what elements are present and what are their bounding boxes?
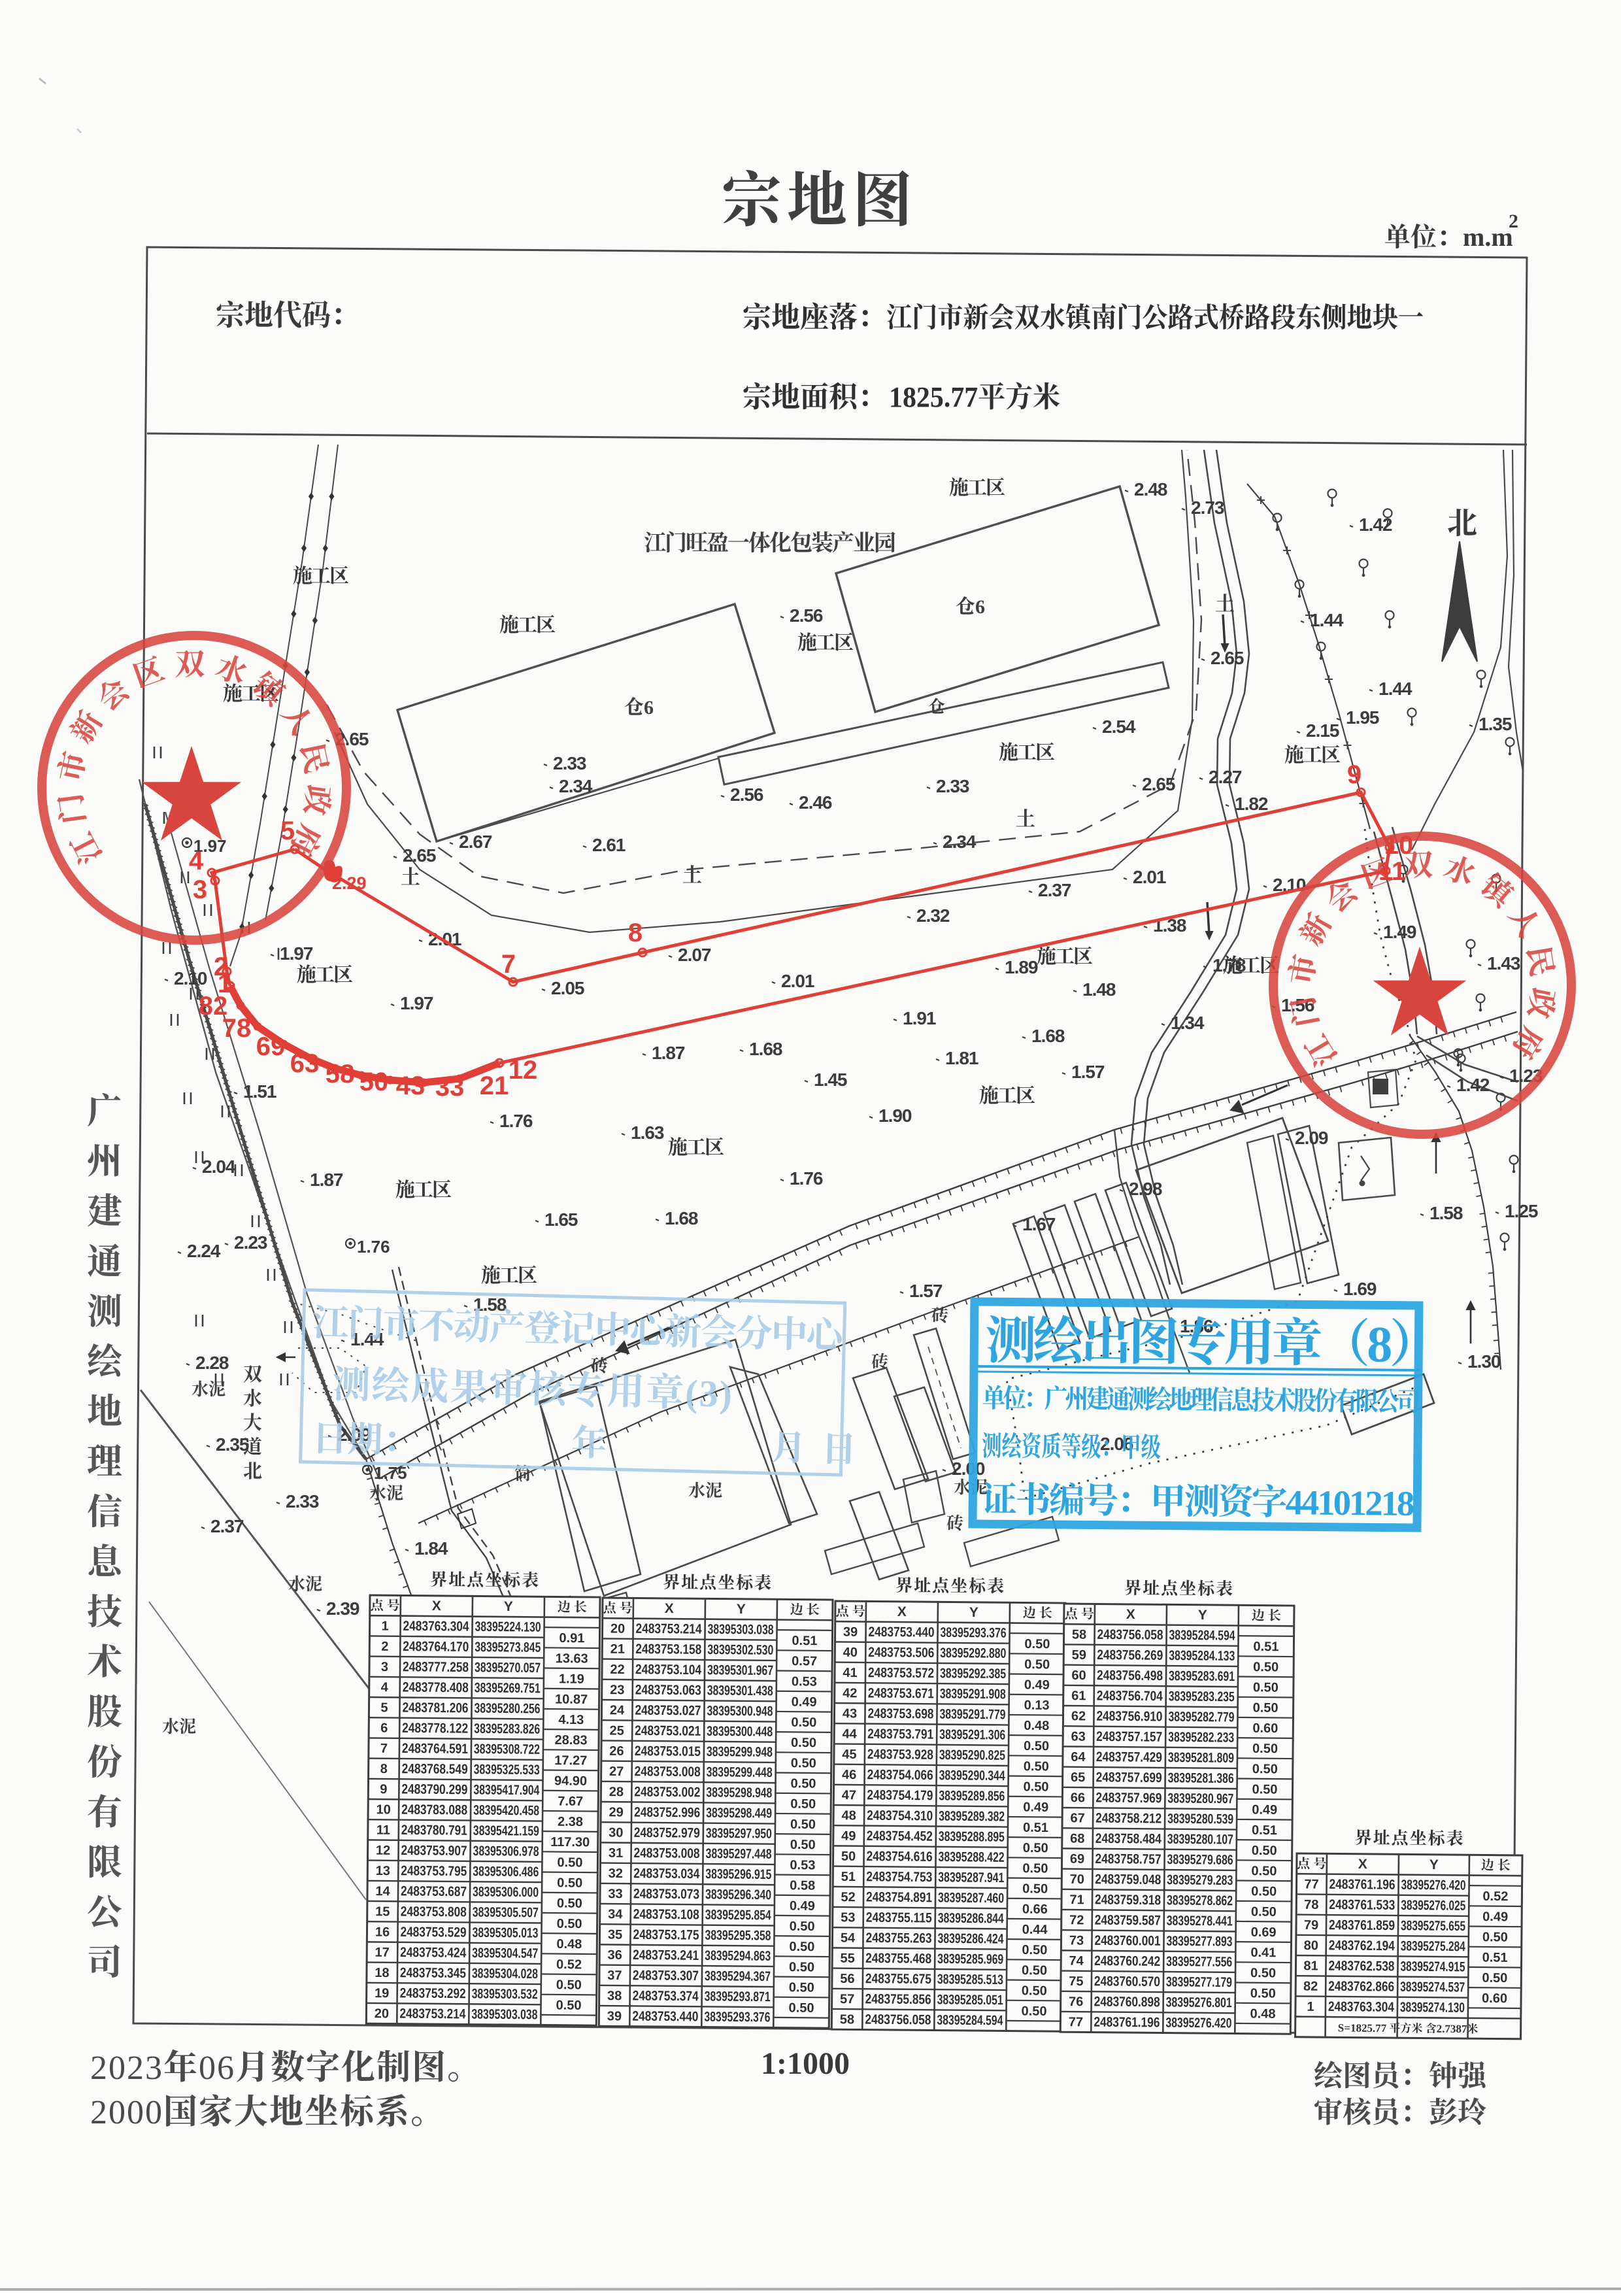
svg-text:2.73: 2.73	[1191, 498, 1224, 518]
svg-text:38395420.458: 38395420.458	[473, 1803, 539, 1819]
svg-text:2.34: 2.34	[943, 832, 977, 852]
svg-text:10: 10	[376, 1802, 390, 1817]
svg-text:38395298.449: 38395298.449	[706, 1806, 772, 1821]
svg-text:地: 地	[87, 1384, 122, 1434]
svg-text:1: 1	[381, 1619, 388, 1634]
svg-text:点 号: 点 号	[371, 1595, 400, 1613]
svg-text:术: 术	[87, 1634, 122, 1685]
svg-text:2.32: 2.32	[916, 905, 950, 926]
svg-text:2.04: 2.04	[202, 1156, 236, 1177]
svg-text:30: 30	[609, 1825, 623, 1840]
svg-text:施工区: 施工区	[499, 609, 556, 637]
svg-text:5: 5	[380, 1700, 388, 1715]
svg-text:2483763.304: 2483763.304	[1328, 1999, 1394, 2015]
svg-text:38395276.025: 38395276.025	[1401, 1898, 1465, 1914]
svg-text:38395279.686: 38395279.686	[1167, 1852, 1233, 1868]
svg-text:21: 21	[480, 1072, 509, 1100]
svg-text:施工区: 施工区	[949, 471, 1005, 500]
svg-text:2: 2	[1509, 205, 1518, 233]
svg-text:2483758.484: 2483758.484	[1095, 1831, 1161, 1847]
svg-text:X: X	[665, 1601, 674, 1616]
svg-text:0.91: 0.91	[559, 1631, 584, 1646]
svg-text:有: 有	[87, 1784, 122, 1834]
svg-text:46: 46	[842, 1768, 856, 1782]
svg-text:2483754.179: 2483754.179	[867, 1787, 933, 1803]
svg-text:1.25: 1.25	[1505, 1201, 1538, 1221]
svg-text:施工区: 施工区	[1284, 739, 1341, 768]
svg-text:2483768.549: 2483768.549	[402, 1761, 468, 1777]
svg-text:2483754.616: 2483754.616	[866, 1849, 932, 1865]
svg-text:57: 57	[840, 1992, 854, 2006]
svg-text:2483760.570: 2483760.570	[1094, 1974, 1160, 1989]
svg-text:59: 59	[1072, 1648, 1086, 1663]
svg-text:38395294.367: 38395294.367	[705, 1968, 771, 1984]
svg-text:25: 25	[610, 1724, 624, 1738]
svg-text:2.37: 2.37	[210, 1516, 244, 1536]
svg-text:2483753.698: 2483753.698	[867, 1706, 933, 1722]
svg-text:2.56: 2.56	[730, 785, 763, 805]
svg-text:38395292.880: 38395292.880	[940, 1646, 1006, 1661]
svg-text:33: 33	[608, 1887, 622, 1901]
svg-text:2483752.996: 2483752.996	[634, 1805, 700, 1821]
svg-text:2483753.015: 2483753.015	[635, 1744, 701, 1759]
svg-text:1.44: 1.44	[1379, 679, 1412, 699]
svg-text:38395285.051: 38395285.051	[937, 1992, 1003, 2008]
svg-text:78: 78	[1304, 1898, 1318, 1912]
svg-text:37: 37	[607, 1968, 622, 1983]
svg-text:0.50: 0.50	[790, 1797, 816, 1812]
svg-text:50: 50	[359, 1068, 389, 1096]
svg-text:58: 58	[326, 1060, 355, 1089]
svg-text:X: X	[1126, 1607, 1135, 1622]
svg-text:1.57: 1.57	[1071, 1062, 1105, 1082]
svg-text:38395302.530: 38395302.530	[707, 1642, 773, 1658]
svg-text:58: 58	[840, 2012, 854, 2027]
svg-text:0.50: 0.50	[1252, 1742, 1278, 1756]
svg-text:38395306.486: 38395306.486	[473, 1864, 539, 1880]
svg-text:绘: 绘	[87, 1334, 124, 1384]
svg-text:0.50: 0.50	[1252, 1762, 1278, 1776]
svg-text:12: 12	[376, 1844, 390, 1858]
svg-text:38395297.448: 38395297.448	[705, 1846, 771, 1862]
svg-text:建: 建	[87, 1183, 122, 1234]
svg-text:0.52: 0.52	[1482, 1889, 1508, 1904]
svg-text:0.50: 0.50	[557, 1876, 582, 1890]
svg-text:1.76: 1.76	[499, 1111, 533, 1131]
svg-text:江门市新会双水镇南门公路式桥路段东侧地块一: 江门市新会双水镇南门公路式桥路段东侧地块一	[886, 296, 1424, 335]
svg-text:54: 54	[841, 1931, 856, 1945]
svg-text:股: 股	[87, 1684, 122, 1734]
svg-text:38395305.013: 38395305.013	[472, 1925, 538, 1941]
svg-text:2483761.196: 2483761.196	[1094, 2015, 1160, 2031]
svg-text:0.48: 0.48	[1250, 2007, 1275, 2021]
svg-text:75: 75	[1069, 1974, 1083, 1989]
svg-text:67: 67	[1070, 1811, 1084, 1825]
svg-text:0.13: 0.13	[1024, 1698, 1050, 1713]
svg-text:单位：m.m: 单位：m.m	[1384, 216, 1513, 254]
svg-text:2483753.529: 2483753.529	[400, 1925, 466, 1940]
svg-text:2.15: 2.15	[1306, 720, 1339, 741]
svg-text:117.30: 117.30	[550, 1835, 590, 1850]
svg-text:0.50: 0.50	[790, 1838, 816, 1852]
svg-text:38395275.655: 38395275.655	[1401, 1918, 1465, 1934]
svg-text:1.63: 1.63	[631, 1123, 664, 1143]
svg-text:38395280.256: 38395280.256	[474, 1701, 540, 1717]
svg-text:62: 62	[1071, 1709, 1086, 1723]
svg-text:1.42: 1.42	[1456, 1075, 1490, 1095]
svg-text:38395299.448: 38395299.448	[707, 1764, 773, 1780]
svg-text:X: X	[1358, 1857, 1367, 1872]
svg-text:38395286.424: 38395286.424	[937, 1931, 1003, 1947]
svg-text:22: 22	[610, 1663, 624, 1677]
svg-text:24: 24	[610, 1703, 625, 1717]
svg-text:38395278.862: 38395278.862	[1167, 1893, 1233, 1908]
svg-text:0.53: 0.53	[792, 1674, 817, 1689]
svg-text:2483777.258: 2483777.258	[403, 1659, 469, 1675]
svg-text:2483753.021: 2483753.021	[635, 1723, 701, 1739]
svg-text:38395295.854: 38395295.854	[705, 1908, 771, 1923]
svg-text:通: 通	[87, 1234, 122, 1284]
svg-text:0.49: 0.49	[1252, 1803, 1277, 1817]
svg-text:2483753.027: 2483753.027	[635, 1703, 701, 1719]
svg-text:2483753.424: 2483753.424	[400, 1945, 466, 1961]
svg-text:2483753.241: 2483753.241	[633, 1948, 699, 1963]
svg-text:砖: 砖	[871, 1349, 888, 1373]
svg-text:2483778.122: 2483778.122	[402, 1721, 468, 1736]
svg-text:9: 9	[380, 1782, 387, 1797]
svg-text:38395270.057: 38395270.057	[475, 1660, 541, 1676]
svg-text:2.56: 2.56	[790, 605, 823, 626]
svg-text:28: 28	[609, 1785, 624, 1799]
svg-text:土: 土	[1016, 803, 1035, 832]
svg-text:2483753.008: 2483753.008	[635, 1764, 701, 1780]
svg-text:38395325.533: 38395325.533	[474, 1762, 540, 1778]
svg-text:14: 14	[375, 1884, 390, 1899]
svg-text:施工区: 施工区	[979, 1079, 1035, 1108]
svg-text:2483755.675: 2483755.675	[865, 1971, 931, 1987]
svg-text:0.49: 0.49	[790, 1899, 815, 1914]
svg-text:43: 43	[843, 1706, 857, 1721]
svg-text:水: 水	[243, 1384, 262, 1411]
svg-text:0.51: 0.51	[1482, 1950, 1508, 1965]
svg-text:13.63: 13.63	[556, 1651, 588, 1666]
svg-text:38395284.594: 38395284.594	[1169, 1628, 1235, 1644]
svg-text:51: 51	[841, 1870, 856, 1884]
svg-text:38395292.385: 38395292.385	[940, 1666, 1006, 1681]
svg-text:2483760.898: 2483760.898	[1094, 1994, 1160, 2010]
svg-text:施工区: 施工区	[999, 736, 1055, 765]
svg-text:52: 52	[841, 1890, 855, 1904]
svg-text:1.84: 1.84	[414, 1538, 448, 1559]
svg-text:技: 技	[87, 1584, 122, 1634]
svg-text:1.65: 1.65	[544, 1209, 578, 1230]
svg-text:81: 81	[1303, 1959, 1318, 1973]
svg-text:1.48: 1.48	[1082, 979, 1116, 1000]
svg-text:测绘出图专用章（8）: 测绘出图专用章（8）	[985, 1300, 1437, 1377]
svg-text:2483753.002: 2483753.002	[634, 1784, 700, 1800]
svg-text:38395277.179: 38395277.179	[1166, 1974, 1232, 1990]
svg-text:38395280.967: 38395280.967	[1167, 1791, 1233, 1806]
svg-text:8: 8	[628, 919, 643, 947]
svg-text:61: 61	[1071, 1689, 1086, 1703]
svg-text:2483753.104: 2483753.104	[635, 1662, 701, 1678]
svg-text:仓6: 仓6	[956, 590, 985, 619]
svg-text:2483753.008: 2483753.008	[633, 1846, 699, 1861]
svg-text:38395283.826: 38395283.826	[474, 1721, 540, 1737]
svg-text:0.50: 0.50	[789, 1960, 814, 1974]
svg-text:施工区: 施工区	[797, 626, 854, 655]
svg-text:38395295.358: 38395295.358	[705, 1928, 771, 1944]
svg-text:0.50: 0.50	[1024, 1637, 1050, 1651]
svg-text:2483753.440: 2483753.440	[632, 2009, 698, 2025]
svg-text:38395308.722: 38395308.722	[474, 1742, 540, 1757]
svg-text:单位：广州建通测绘地理信息技术股份有限公司: 单位：广州建通测绘地理信息技术股份有限公司	[982, 1377, 1419, 1419]
svg-text:施工区: 施工区	[297, 958, 353, 987]
svg-text:2483761.859: 2483761.859	[1329, 1917, 1395, 1933]
svg-text:2: 2	[381, 1640, 388, 1654]
svg-text:Y: Y	[504, 1599, 513, 1614]
svg-text:宗地面积：: 宗地面积：	[743, 373, 886, 415]
svg-text:69: 69	[256, 1032, 286, 1061]
svg-text:6: 6	[380, 1721, 388, 1736]
svg-text:38395290.344: 38395290.344	[939, 1768, 1005, 1783]
svg-text:2483756.704: 2483756.704	[1097, 1688, 1163, 1704]
svg-text:1.67: 1.67	[1022, 1214, 1056, 1234]
svg-text:0.50: 0.50	[791, 1736, 816, 1750]
svg-text:2483781.206: 2483781.206	[402, 1700, 468, 1716]
svg-text:17.27: 17.27	[554, 1753, 587, 1768]
svg-text:20: 20	[610, 1622, 625, 1636]
svg-text:80: 80	[1304, 1938, 1318, 1953]
svg-text:38395274.130: 38395274.130	[1400, 2000, 1465, 2016]
svg-text:2.48: 2.48	[1134, 479, 1167, 499]
svg-text:38395287.941: 38395287.941	[938, 1870, 1004, 1885]
svg-text:双: 双	[243, 1360, 262, 1387]
svg-text:砖: 砖	[931, 1302, 948, 1326]
svg-text:2.46: 2.46	[799, 792, 832, 813]
svg-text:0.57: 0.57	[792, 1654, 817, 1668]
svg-text:2483753.572: 2483753.572	[868, 1665, 934, 1681]
svg-text:2483753.440: 2483753.440	[868, 1625, 934, 1640]
svg-text:2483757.157: 2483757.157	[1096, 1729, 1162, 1745]
svg-text:1.81: 1.81	[945, 1048, 978, 1068]
svg-text:2483753.175: 2483753.175	[633, 1927, 699, 1943]
svg-text:份: 份	[87, 1734, 122, 1785]
svg-text:2.09: 2.09	[1295, 1128, 1328, 1148]
svg-text:38395293.376: 38395293.376	[940, 1625, 1006, 1641]
svg-text:2.61: 2.61	[592, 835, 626, 855]
svg-text:2483753.292: 2483753.292	[400, 1985, 466, 2001]
svg-text:34: 34	[608, 1907, 623, 1921]
svg-text:1.19: 1.19	[559, 1672, 584, 1686]
svg-text:2000国家大地坐标系。: 2000国家大地坐标系。	[90, 2084, 446, 2133]
svg-text:2483755.263: 2483755.263	[865, 1931, 931, 1946]
svg-text:7: 7	[501, 950, 516, 979]
svg-text:2483758.212: 2483758.212	[1095, 1811, 1161, 1827]
svg-text:0.50: 0.50	[1250, 1986, 1276, 2001]
svg-text:1.76: 1.76	[790, 1168, 823, 1189]
svg-text:39: 39	[843, 1625, 858, 1640]
svg-text:水泥: 水泥	[162, 1714, 196, 1738]
svg-text:15: 15	[375, 1904, 390, 1919]
svg-text:38395282.779: 38395282.779	[1168, 1710, 1234, 1725]
svg-text:38395276.801: 38395276.801	[1166, 1995, 1232, 2010]
svg-text:2483753.108: 2483753.108	[633, 1907, 699, 1923]
svg-text:1.49: 1.49	[1383, 922, 1416, 942]
svg-text:65: 65	[1071, 1770, 1085, 1785]
svg-text:1.68: 1.68	[665, 1208, 698, 1228]
svg-text:66: 66	[1071, 1791, 1085, 1805]
svg-text:2483762.538: 2483762.538	[1328, 1959, 1394, 1974]
svg-text:0.48: 0.48	[556, 1937, 582, 1951]
svg-text:38395288.895: 38395288.895	[939, 1829, 1005, 1845]
svg-text:1.97: 1.97	[400, 993, 433, 1013]
svg-text:74: 74	[1069, 1954, 1084, 1968]
svg-text:12: 12	[509, 1056, 538, 1085]
svg-text:11: 11	[376, 1823, 390, 1837]
svg-text:2.29: 2.29	[332, 873, 367, 893]
svg-text:76: 76	[1069, 1995, 1083, 2009]
svg-text:公: 公	[87, 1885, 122, 1935]
svg-text:日期：: 日期：	[312, 1410, 419, 1463]
svg-text:1.68: 1.68	[749, 1039, 782, 1059]
svg-text:道: 道	[243, 1432, 262, 1459]
svg-text:X: X	[432, 1598, 441, 1613]
svg-text:0.50: 0.50	[1482, 1930, 1508, 1944]
svg-text:18: 18	[375, 1966, 389, 1980]
svg-text:2483753.214: 2483753.214	[399, 2006, 465, 2022]
svg-text:0.60: 0.60	[1482, 1991, 1507, 2006]
svg-text:点 号: 点 号	[1065, 1603, 1094, 1622]
svg-text:仓: 仓	[928, 694, 945, 718]
svg-text:0.41: 0.41	[1250, 1946, 1276, 1960]
svg-text:38395296.915: 38395296.915	[705, 1866, 771, 1882]
svg-text:35: 35	[608, 1927, 622, 1942]
svg-text:55: 55	[841, 1951, 855, 1966]
svg-text:Y: Y	[1198, 1608, 1207, 1623]
svg-text:施工区: 施工区	[668, 1131, 724, 1160]
svg-text:0.50: 0.50	[1250, 1966, 1276, 1980]
svg-text:2483753.214: 2483753.214	[635, 1621, 701, 1637]
svg-text:38395277.893: 38395277.893	[1166, 1934, 1232, 1950]
svg-text:2483755.468: 2483755.468	[865, 1951, 931, 1967]
svg-text:S=1825.77 平方米 含2.7387米: S=1825.77 平方米 含2.7387米	[1338, 2018, 1479, 2036]
svg-text:2483754.753: 2483754.753	[866, 1869, 932, 1885]
svg-text:点 号: 点 号	[603, 1597, 633, 1616]
svg-text:宗地代码：: 宗地代码：	[216, 292, 359, 333]
svg-text:38395283.235: 38395283.235	[1169, 1689, 1235, 1704]
svg-text:0.48: 0.48	[1024, 1719, 1049, 1733]
svg-text:4: 4	[189, 847, 204, 875]
svg-text:64: 64	[1071, 1750, 1086, 1764]
svg-text:0.66: 0.66	[1022, 1902, 1048, 1917]
svg-text:2.07: 2.07	[678, 945, 711, 965]
svg-text:1.58: 1.58	[1429, 1203, 1463, 1223]
svg-text:2483764.591: 2483764.591	[402, 1741, 468, 1757]
svg-text:0.50: 0.50	[1253, 1680, 1278, 1695]
svg-text:0.50: 0.50	[556, 1999, 581, 2013]
svg-text:2483756.269: 2483756.269	[1097, 1647, 1163, 1663]
svg-text:7: 7	[380, 1742, 388, 1756]
svg-text:0.50: 0.50	[557, 1897, 582, 1911]
svg-text:2.98: 2.98	[1129, 1179, 1162, 1199]
svg-text:2483761.533: 2483761.533	[1329, 1897, 1395, 1913]
svg-text:38395284.594: 38395284.594	[937, 2013, 1003, 2029]
svg-text:2483754.452: 2483754.452	[867, 1829, 933, 1844]
svg-text:0.60: 0.60	[1252, 1721, 1278, 1736]
svg-text:2483754.310: 2483754.310	[867, 1808, 933, 1824]
svg-text:10.87: 10.87	[555, 1692, 588, 1706]
svg-text:26: 26	[609, 1744, 624, 1759]
svg-text:38395278.441: 38395278.441	[1167, 1914, 1233, 1929]
svg-text:16: 16	[375, 1925, 390, 1939]
svg-text:2483753.374: 2483753.374	[633, 1988, 699, 2004]
svg-text:3: 3	[193, 875, 207, 904]
svg-text:38395277.556: 38395277.556	[1166, 1954, 1232, 1970]
svg-text:38395306.000: 38395306.000	[473, 1884, 539, 1900]
svg-text:边 长: 边 长	[1252, 1605, 1281, 1624]
svg-text:测绘资质等级：甲级: 测绘资质等级：甲级	[982, 1425, 1161, 1465]
svg-text:38395299.948: 38395299.948	[707, 1744, 773, 1760]
svg-text:38395305.507: 38395305.507	[473, 1905, 539, 1921]
svg-text:45: 45	[842, 1747, 856, 1762]
svg-text:82: 82	[1303, 1979, 1318, 1993]
svg-text:水泥: 水泥	[369, 1480, 403, 1504]
svg-text:0.50: 0.50	[788, 2001, 814, 2016]
svg-text:38395298.948: 38395298.948	[706, 1785, 772, 1800]
svg-text:7.67: 7.67	[558, 1795, 583, 1809]
svg-text:0.50: 0.50	[791, 1715, 816, 1730]
svg-text:土: 土	[1215, 588, 1235, 616]
svg-text:71: 71	[1069, 1893, 1084, 1907]
svg-text:施工区: 施工区	[293, 560, 349, 588]
svg-text:2.67: 2.67	[459, 832, 492, 852]
svg-text:2483756.910: 2483756.910	[1096, 1709, 1162, 1725]
svg-text:78: 78	[222, 1014, 252, 1043]
svg-text:79: 79	[1304, 1918, 1318, 1933]
svg-text:38395285.969: 38395285.969	[937, 1951, 1003, 1967]
svg-text:2.33: 2.33	[553, 753, 586, 773]
svg-text:63: 63	[290, 1049, 320, 1078]
svg-text:审核员：彭玲: 审核员：彭玲	[1314, 2089, 1486, 2131]
svg-text:43: 43	[396, 1072, 426, 1100]
svg-text:0.49: 0.49	[1023, 1800, 1048, 1815]
svg-text:0.50: 0.50	[557, 1917, 582, 1931]
svg-text:38395303.038: 38395303.038	[471, 2007, 537, 2023]
svg-text:2.23: 2.23	[234, 1232, 267, 1253]
svg-text:0.49: 0.49	[792, 1695, 817, 1710]
svg-text:2483760.242: 2483760.242	[1094, 1953, 1160, 1969]
svg-text:38395285.513: 38395285.513	[937, 1972, 1003, 1987]
svg-text:38395274.537: 38395274.537	[1400, 1980, 1465, 1995]
svg-text:2.27: 2.27	[1209, 767, 1242, 787]
svg-text:0.49: 0.49	[1482, 1910, 1508, 1924]
svg-text:68: 68	[1070, 1831, 1084, 1846]
svg-text:边 长: 边 长	[1481, 1855, 1511, 1874]
svg-text:2483753.063: 2483753.063	[635, 1682, 701, 1698]
svg-text:38395294.863: 38395294.863	[705, 1948, 771, 1964]
svg-text:0.50: 0.50	[789, 1940, 814, 1954]
svg-text:1.69: 1.69	[1343, 1279, 1377, 1299]
svg-text:8: 8	[380, 1762, 388, 1776]
svg-text:56: 56	[840, 1972, 854, 1986]
svg-text:0.50: 0.50	[1253, 1701, 1278, 1715]
svg-text:2.01: 2.01	[781, 971, 814, 991]
svg-text:州: 州	[87, 1134, 122, 1184]
svg-text:1825.77平方米: 1825.77平方米	[889, 373, 1060, 415]
svg-text:界址点坐标表: 界址点坐标表	[1355, 1825, 1465, 1849]
svg-text:测绘成果审核专用章(3): 测绘成果审核专用章(3)	[332, 1353, 735, 1418]
